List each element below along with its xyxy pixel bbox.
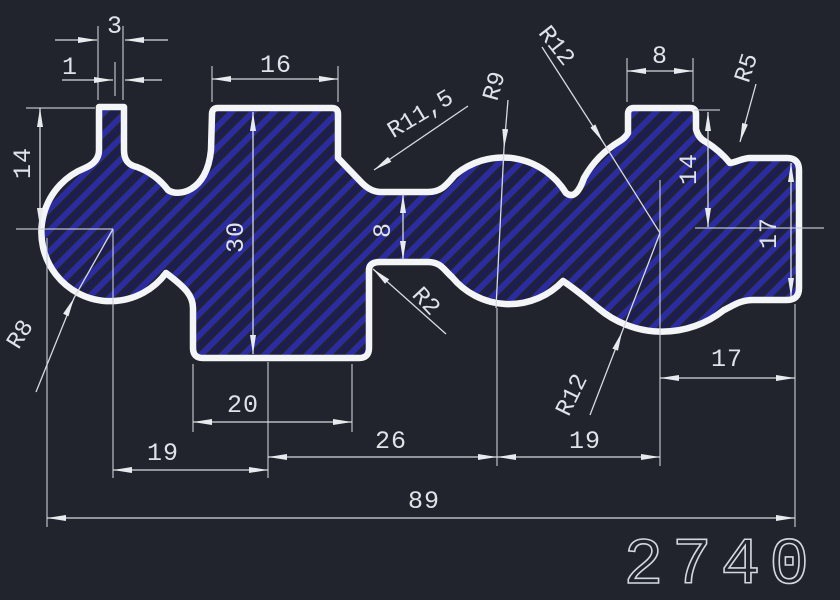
dim-label-right-block-height: 17 bbox=[755, 217, 784, 249]
dim-label-span-left: 19 bbox=[147, 439, 179, 468]
dim-label-stem-width: 3 bbox=[107, 12, 123, 41]
dim-label-neck-height: 8 bbox=[369, 222, 398, 238]
cad-canvas[interactable]: 3 1 16 8 14 30 8 14 17 20 19 26 19 17 89… bbox=[0, 0, 840, 600]
dim-label-span-mid: 26 bbox=[375, 427, 407, 456]
dim-label-span-right: 19 bbox=[569, 427, 601, 456]
dim-label-right-inset: 17 bbox=[711, 345, 743, 374]
dim-label-stem-lip: 1 bbox=[62, 53, 78, 82]
dim-label-bump-width: 8 bbox=[652, 42, 668, 71]
dim-label-left-height: 14 bbox=[9, 147, 38, 179]
dim-label-overall-width: 89 bbox=[408, 487, 440, 516]
dim-label-block-top-width: 16 bbox=[260, 51, 292, 80]
dim-label-block-height: 30 bbox=[222, 221, 251, 253]
dim-label-right-upper-height: 14 bbox=[675, 153, 704, 185]
dim-label-block-bottom-width: 20 bbox=[227, 391, 259, 420]
part-number: 2740 bbox=[624, 528, 818, 600]
